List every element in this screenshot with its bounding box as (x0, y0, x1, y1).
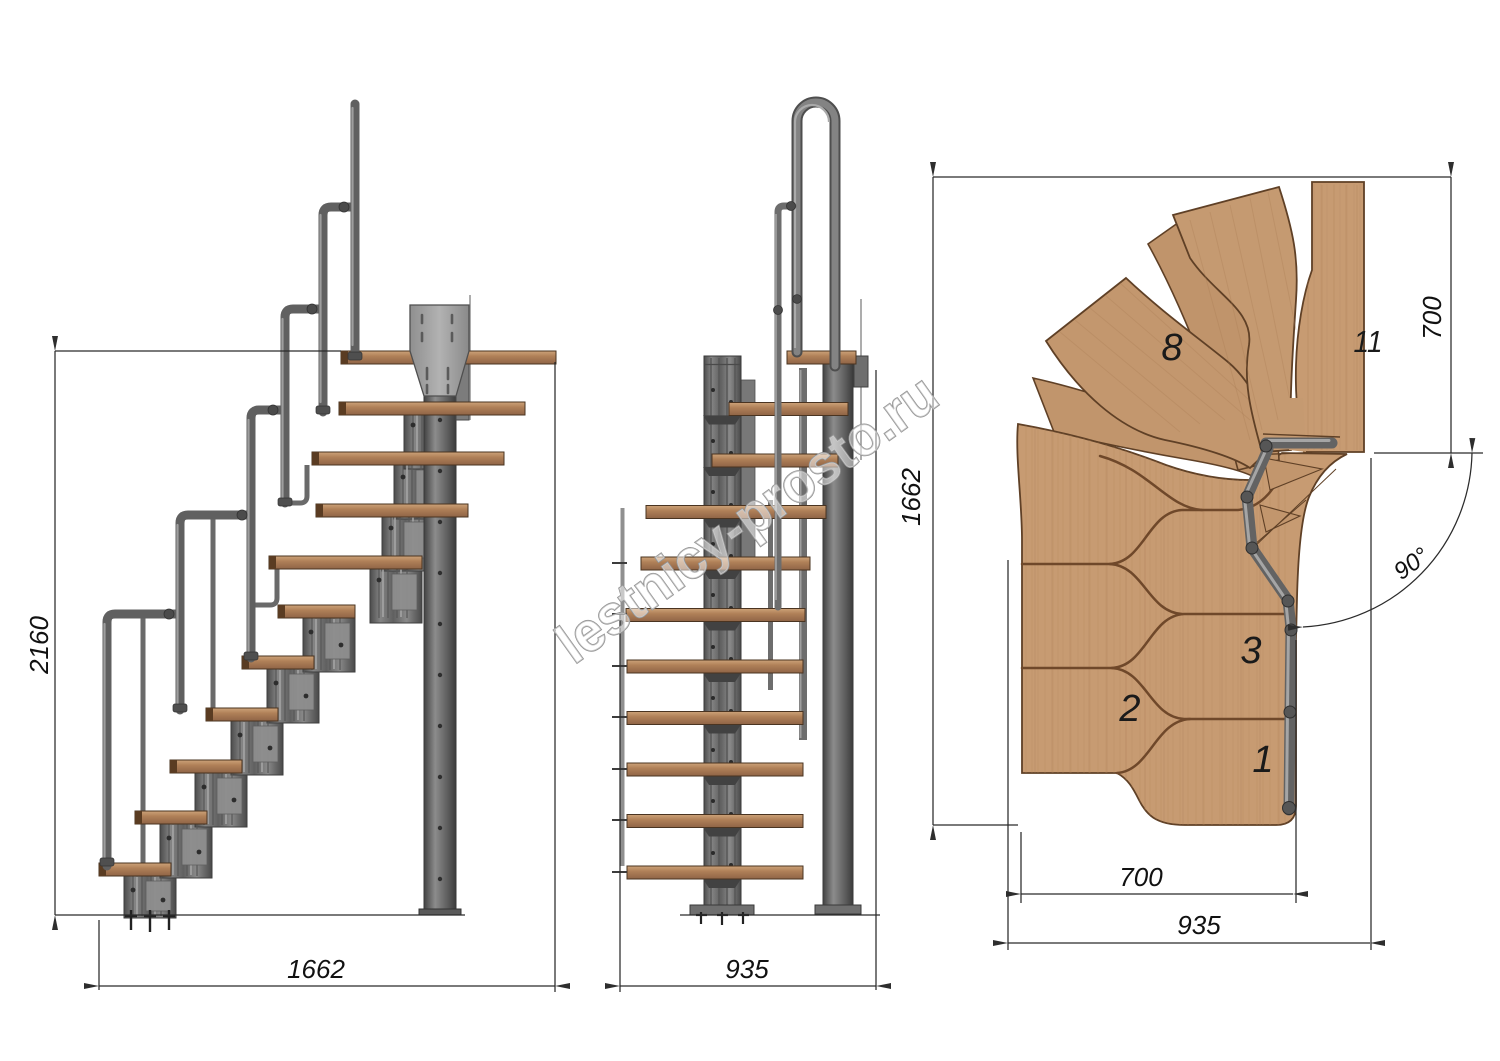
svg-text:1: 1 (1252, 739, 1273, 781)
svg-text:935: 935 (1177, 910, 1221, 940)
svg-text:700: 700 (1417, 296, 1447, 340)
svg-text:935: 935 (725, 954, 769, 984)
svg-text:2: 2 (1118, 688, 1140, 730)
svg-text:11: 11 (1354, 324, 1383, 359)
svg-text:8: 8 (1161, 327, 1182, 369)
svg-text:700: 700 (1119, 862, 1163, 892)
svg-text:2160: 2160 (24, 616, 54, 675)
svg-text:3: 3 (1240, 630, 1261, 672)
svg-text:1662: 1662 (287, 954, 345, 984)
svg-text:1662: 1662 (896, 468, 926, 526)
